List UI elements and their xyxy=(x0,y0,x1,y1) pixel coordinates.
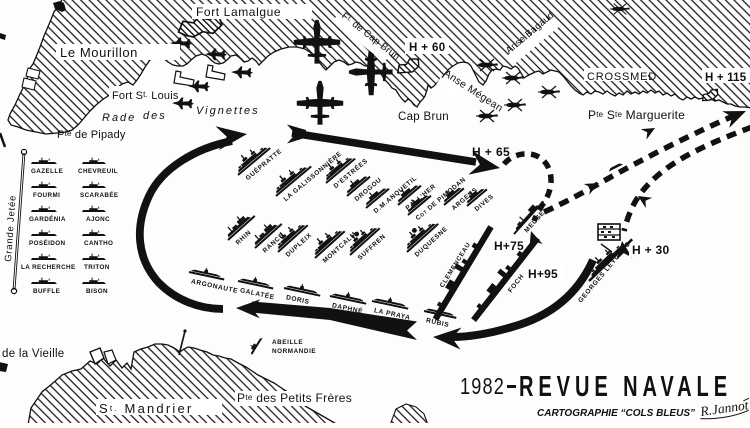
svg-text:Rade: Rade xyxy=(102,112,136,124)
svg-text:H + 115: H + 115 xyxy=(705,72,747,84)
svg-text:Pte Ste Marguerite: Pte Ste Marguerite xyxy=(588,108,685,122)
svg-text:Cap Brun: Cap Brun xyxy=(398,111,449,123)
svg-text:H + 60: H + 60 xyxy=(409,42,446,54)
svg-text:GAZELLE: GAZELLE xyxy=(31,168,63,175)
svg-text:Fort Lamalgue: Fort Lamalgue xyxy=(196,5,281,19)
svg-text:H + 65: H + 65 xyxy=(472,145,510,159)
svg-text:GARDÉNIA: GARDÉNIA xyxy=(29,214,66,223)
svg-text:Pte des Petits Frères: Pte des Petits Frères xyxy=(237,391,352,405)
svg-text:BUFFLE: BUFFLE xyxy=(33,288,60,295)
svg-text:REVUE NAVALE: REVUE NAVALE xyxy=(519,371,732,403)
svg-text:NORMANDIE: NORMANDIE xyxy=(272,348,316,355)
svg-text:FOURMI: FOURMI xyxy=(33,192,60,199)
svg-text:CANTHO: CANTHO xyxy=(84,240,113,247)
svg-text:H + 30: H + 30 xyxy=(632,243,670,257)
svg-text:H+95: H+95 xyxy=(528,267,558,281)
svg-text:ABEILLE: ABEILLE xyxy=(272,339,303,346)
svg-text:CROSSMED: CROSSMED xyxy=(587,71,657,83)
svg-text:de la Vieille: de la Vieille xyxy=(2,348,65,360)
svg-text:1982: 1982 xyxy=(460,373,505,399)
svg-text:AJONC: AJONC xyxy=(86,216,110,223)
svg-text:LA RECHERCHE: LA RECHERCHE xyxy=(21,264,76,271)
svg-text:BISON: BISON xyxy=(86,288,108,295)
svg-text:TRITON: TRITON xyxy=(84,264,110,271)
svg-text:CARTOGRAPHIE “COLS BLEUS”: CARTOGRAPHIE “COLS BLEUS” xyxy=(537,407,696,419)
svg-text:Vignettes: Vignettes xyxy=(196,105,260,117)
svg-text:CHEVREUIL: CHEVREUIL xyxy=(78,168,118,175)
svg-text:des: des xyxy=(143,110,167,122)
svg-text:POSÉIDON: POSÉIDON xyxy=(29,238,65,247)
svg-text:SCARABÉE: SCARABÉE xyxy=(80,190,119,199)
svg-text:Le Mourillon: Le Mourillon xyxy=(60,45,138,60)
